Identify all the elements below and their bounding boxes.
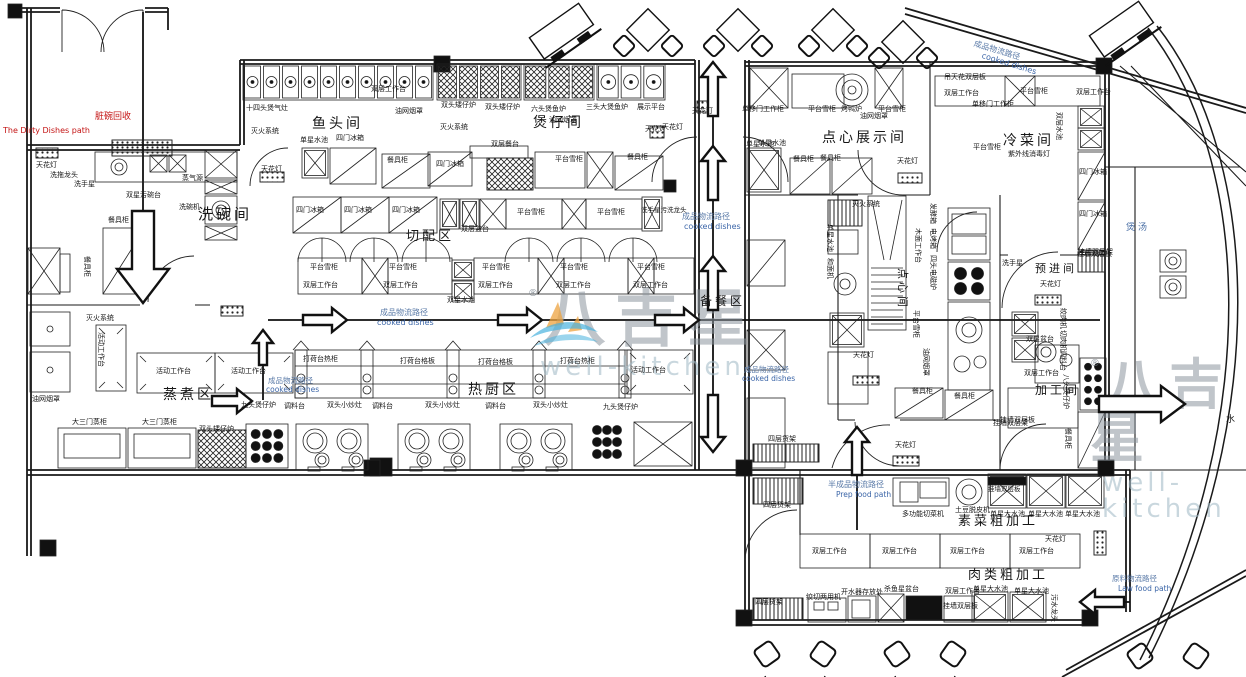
equipment-label: 展示平台 <box>637 104 665 111</box>
equipment-label: 四门冰箱 <box>296 207 324 214</box>
equipment-label: 平台雪柜 <box>517 209 545 216</box>
equipment-label: 灭火系统 <box>251 128 279 135</box>
equipment-label: 四门冰箱 <box>1079 169 1107 176</box>
equipment-label: 多功能切菜机 <box>902 511 944 518</box>
flow-path-label: cooked dishes <box>742 375 795 383</box>
equipment-label: 调料台 <box>1059 350 1066 371</box>
room-label: 点心展示间 <box>822 131 907 145</box>
equipment-label: 杀鱼星盆台 <box>884 586 919 593</box>
equipment-label: 双层工作台 <box>882 548 917 555</box>
flow-path-label: 成品物流路径 <box>744 366 789 374</box>
equipment-label: 双头矮仔炉 <box>485 104 520 111</box>
equipment-label: 活动工作台 <box>156 368 191 375</box>
equipment-label: 六头煲鱼炉 <box>531 106 566 113</box>
equipment-label: 挂墙双层板 <box>1077 251 1112 258</box>
equipment-label: 餐具柜 <box>820 155 841 162</box>
equipment-label: 平台雪柜 <box>310 264 338 271</box>
kitchen-floor-plan: ® 八吉星 well-kitchen ® 八吉星 well-kitchen 洗碗… <box>0 0 1246 677</box>
equipment-label: 大三门蒸柜 <box>72 419 107 426</box>
equipment-label: 九头煲仔炉 <box>603 404 638 411</box>
equipment-label: 平台雪柜 <box>912 310 919 338</box>
equipment-label: 土豆脱皮机 <box>955 507 990 514</box>
equipment-label: 打荷台格板 <box>400 358 435 365</box>
flow-path-label: 半成品物流路径 <box>828 481 884 489</box>
equipment-label: 平台雪柜 <box>389 264 417 271</box>
equipment-label: 四门冰箱 <box>1079 211 1107 218</box>
equipment-label: 绞肉机 <box>1059 308 1066 329</box>
equipment-label: 天花灯 <box>897 158 918 165</box>
equipment-label: 洗拖龙头 <box>50 172 78 179</box>
equipment-label: 餐具柜 <box>387 157 408 164</box>
equipment-label: 灭火系统 <box>440 124 468 131</box>
equipment-label: 污水龙头 <box>1050 594 1057 622</box>
equipment-label: 和面机 <box>826 258 833 279</box>
equipment-label: 大三门蒸柜 <box>142 419 177 426</box>
equipment-label: 双层工作台 <box>303 282 338 289</box>
equipment-label: 平台雪柜 <box>555 156 583 163</box>
equipment-label: 切肉机 <box>1059 330 1066 351</box>
equipment-label: 绞切两用机 <box>806 594 841 601</box>
equipment-label: 天花灯 <box>1040 281 1061 288</box>
flow-path-label: cooked dishes <box>684 223 741 231</box>
equipment-label: 油网烟罩 <box>395 108 423 115</box>
equipment-label: 蒸气源 <box>182 175 203 182</box>
equipment-label: 发酵箱 <box>929 203 936 224</box>
room-label: 备餐区 <box>700 295 745 307</box>
equipment-label: 挂墙双层架 <box>993 420 1028 427</box>
equipment-label: 三头大煲鱼炉 <box>586 104 628 111</box>
equipment-label: 餐具柜 <box>954 393 975 400</box>
room-label: 鱼头间 <box>312 117 363 131</box>
equipment-label: 餐具柜 <box>1064 428 1071 449</box>
equipment-label: 双层盆台 <box>461 226 489 233</box>
equipment-label: 双层水池 <box>1055 112 1062 140</box>
equipment-label: 八头煲仔炉 <box>1062 374 1069 409</box>
room-label: 水 <box>1226 416 1238 425</box>
equipment-label: 平台雪柜 <box>482 264 510 271</box>
room-label: 加工间 <box>1035 384 1080 396</box>
equipment-label: 双层工作台 <box>1076 89 1111 96</box>
flow-path-label: cooked dishes <box>377 319 434 327</box>
equipment-label: 双层工作台 <box>556 282 591 289</box>
flow-path-label: The Dirty Dishes path <box>3 127 90 135</box>
equipment-label: 木面工作台 <box>914 228 921 263</box>
equipment-label: 四头电磁炉 <box>929 255 936 290</box>
equipment-label: 双星盆台 <box>1026 336 1054 343</box>
equipment-label: 双头小炒灶 <box>327 402 362 409</box>
equipment-label: 灭火系统 <box>86 315 114 322</box>
equipment-label: 餐具柜 <box>793 156 814 163</box>
equipment-label: 双头小炒灶 <box>425 402 460 409</box>
equipment-label: 天花灯 <box>692 108 713 115</box>
equipment-label: 天花灯 <box>261 166 282 173</box>
equipment-label: 四门冰箱 <box>336 135 364 142</box>
equipment-label: 洗手星 <box>1002 260 1023 267</box>
equipment-label: 平台雪柜 <box>560 264 588 271</box>
equipment-label: 单星大水池 <box>973 586 1008 593</box>
equipment-label: 单星水池 <box>826 224 833 252</box>
equipment-label: 单星大水池 <box>990 511 1025 518</box>
equipment-label: 双层工作台 <box>633 282 668 289</box>
plan-labels: 洗碗间鱼头间煲仔间切配区蒸煮区热厨区备餐区点心展示间冷菜间素菜粗加工肉类粗加工预… <box>0 0 1246 677</box>
flow-path-label: cooked dishes <box>266 386 319 394</box>
equipment-label: 活动工作台 <box>631 367 666 374</box>
equipment-label: 电烤箱 <box>929 228 936 249</box>
equipment-label: 单星水池 <box>758 140 786 147</box>
equipment-label: 打荷台热柜 <box>560 358 595 365</box>
equipment-label: 紫外线消毒灯 <box>1008 151 1050 158</box>
equipment-label: 天花灯 <box>1045 536 1066 543</box>
equipment-label: 双层工作台 <box>383 282 418 289</box>
flow-path-label: Prep food path <box>836 491 891 499</box>
equipment-label: 九头煲仔炉 <box>241 402 276 409</box>
equipment-label: 单移门工作柜 <box>972 101 1014 108</box>
equipment-label: 餐具柜 <box>108 217 129 224</box>
equipment-label: 双头小炒灶 <box>533 402 568 409</box>
equipment-label: 平台雪柜 <box>973 144 1001 151</box>
equipment-label: 双层工作台 <box>478 282 513 289</box>
flow-path-label: 成品物流路径 <box>380 309 428 317</box>
flow-path-label: 脏碗回收 <box>95 113 131 122</box>
equipment-label: 开水器存放处 <box>841 589 883 596</box>
room-label: 蒸煮区 <box>163 388 214 402</box>
equipment-label: 平台雪柜 <box>878 106 906 113</box>
equipment-label: 餐具柜 <box>912 388 933 395</box>
equipment-label: 烤鸭炉 <box>841 106 862 113</box>
equipment-label: 双头矮仔炉 <box>441 102 476 109</box>
equipment-label: 四门冰箱 <box>344 207 372 214</box>
equipment-label: 单星大水池 <box>1065 511 1100 518</box>
equipment-label: 双层工作台 <box>1024 370 1059 377</box>
equipment-label: 四层货架 <box>768 436 796 443</box>
equipment-label: 平台雪柜 <box>637 264 665 271</box>
equipment-label: 活动工作台 <box>231 368 266 375</box>
equipment-label: 洗手星污洗龙头 <box>641 207 687 214</box>
equipment-label: 调料台 <box>372 403 393 410</box>
room-label: 冷菜间 <box>1003 134 1054 148</box>
equipment-label: 油网烟罩 <box>549 117 577 124</box>
equipment-label: 调料台 <box>485 403 506 410</box>
equipment-label: 吊天花双层板 <box>944 74 986 81</box>
equipment-label: 双层工作台 <box>812 548 847 555</box>
room-label: 肉类粗加工 <box>968 569 1048 582</box>
equipment-label: 单星水池 <box>300 137 328 144</box>
equipment-label: 平台雪柜 <box>597 209 625 216</box>
equipment-label: 洗手星 <box>74 181 95 188</box>
equipment-label: 平台雪柜 <box>808 106 836 113</box>
equipment-label: 挂墙双层板 <box>943 603 978 610</box>
equipment-label: 单星大水池 <box>1028 511 1063 518</box>
equipment-label: 打荷台格板 <box>478 359 513 366</box>
equipment-label: 洗碗机 <box>179 204 200 211</box>
equipment-label: 打荷台热柜 <box>303 356 338 363</box>
equipment-label: 双星污碗台 <box>126 192 161 199</box>
equipment-label: 餐具柜 <box>83 256 90 277</box>
equipment-label: 双层餐台 <box>491 141 519 148</box>
equipment-label: 餐具柜 <box>627 154 648 161</box>
room-label: 热厨区 <box>468 383 519 397</box>
equipment-label: 双星水池 <box>447 297 475 304</box>
equipment-label: 双层工作台 <box>944 90 979 97</box>
equipment-label: 灭火系统 <box>852 201 880 208</box>
equipment-label: 四门冰箱 <box>436 161 464 168</box>
flow-path-label: 成品物流路径 <box>682 213 730 221</box>
room-label: 洗碗间 <box>198 207 252 222</box>
equipment-label: 双层工作台 <box>950 548 985 555</box>
flow-path-label: 原料物流路径 <box>1112 575 1157 583</box>
equipment-label: 油网烟罩 <box>32 396 60 403</box>
equipment-label: 油网烟罩 <box>860 113 888 120</box>
equipment-label: 双头矮仔炉 <box>199 426 234 433</box>
equipment-label: 调料台 <box>284 403 305 410</box>
equipment-label: 天花灯 <box>895 442 916 449</box>
room-label: 预进间 <box>1035 263 1077 274</box>
equipment-label: 天花灯 <box>36 162 57 169</box>
equipment-label: 单星大水池 <box>1014 588 1049 595</box>
equipment-label: 四门冰箱 <box>392 207 420 214</box>
equipment-label: 双层工作台 <box>371 86 406 93</box>
equipment-label: 双层工作台 <box>1019 548 1054 555</box>
equipment-label: 四层货架 <box>755 599 783 606</box>
equipment-label: 天花灯 <box>645 126 666 133</box>
room-label: 点心间 <box>897 268 908 310</box>
equipment-label: 天花灯 <box>853 352 874 359</box>
equipment-label: 四层货架 <box>763 502 791 509</box>
room-label: 煲汤 <box>1126 224 1150 233</box>
equipment-label: 单移门工作柜 <box>742 106 784 113</box>
flow-path-label: Law food path <box>1118 585 1171 593</box>
flow-path-label: 成品物流路径 <box>268 377 313 385</box>
equipment-label: 十四头煲气灶 <box>246 105 288 112</box>
equipment-label: 活动工作台 <box>97 332 104 367</box>
equipment-label: 油网烟罩 <box>922 348 929 376</box>
room-label: 切配区 <box>406 230 454 243</box>
equipment-label: 挂墙双层板 <box>988 486 1021 493</box>
equipment-label: 平台雪柜 <box>1020 88 1048 95</box>
